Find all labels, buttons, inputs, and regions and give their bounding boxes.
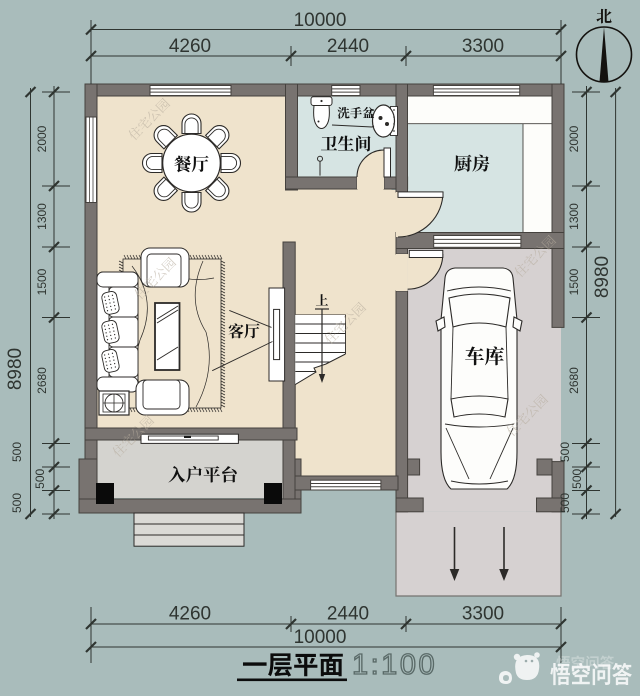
svg-text:3300: 3300 [462, 36, 504, 57]
svg-text:2000: 2000 [567, 125, 581, 152]
svg-text:3300: 3300 [462, 604, 504, 625]
svg-text:1300: 1300 [35, 203, 49, 230]
svg-text:4260: 4260 [169, 36, 211, 57]
svg-text:500: 500 [558, 493, 572, 513]
svg-text:10000: 10000 [294, 10, 347, 31]
svg-text:500: 500 [33, 468, 47, 488]
svg-text:8980: 8980 [592, 256, 613, 298]
svg-text:2000: 2000 [35, 125, 49, 152]
svg-text:2440: 2440 [327, 36, 369, 57]
svg-text:500: 500 [570, 468, 584, 488]
svg-text:500: 500 [10, 442, 24, 462]
svg-text:2680: 2680 [567, 367, 581, 394]
svg-text:8980: 8980 [5, 348, 26, 390]
svg-text:500: 500 [558, 442, 572, 462]
svg-text:1300: 1300 [567, 203, 581, 230]
svg-text:1:100: 1:100 [352, 649, 437, 681]
svg-text:10000: 10000 [294, 627, 347, 648]
svg-text:500: 500 [10, 493, 24, 513]
svg-text:1500: 1500 [567, 268, 581, 295]
svg-text:2440: 2440 [327, 604, 369, 625]
svg-text:4260: 4260 [169, 604, 211, 625]
svg-text:2680: 2680 [35, 367, 49, 394]
svg-text:1500: 1500 [35, 268, 49, 295]
